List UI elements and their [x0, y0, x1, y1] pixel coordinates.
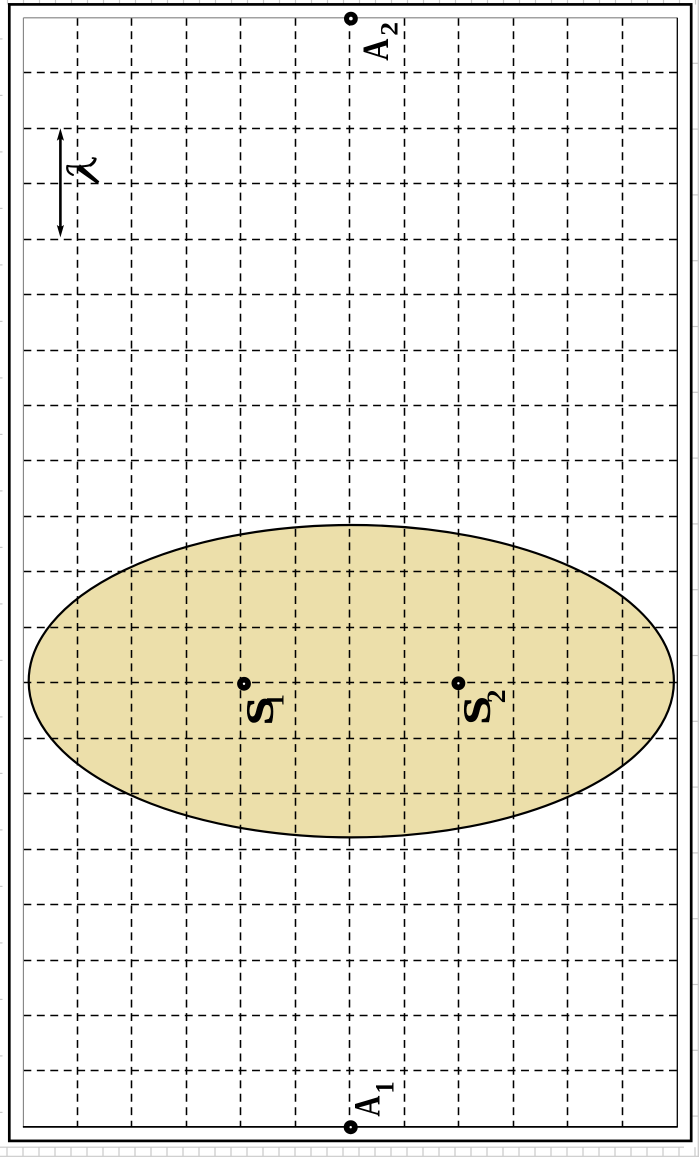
svg-text:A: A: [356, 38, 396, 61]
svg-text:2: 2: [375, 22, 404, 36]
svg-text:2: 2: [481, 689, 510, 703]
svg-text:1: 1: [262, 694, 290, 706]
svg-text:1: 1: [372, 1081, 400, 1093]
svg-text:A: A: [347, 1096, 388, 1117]
